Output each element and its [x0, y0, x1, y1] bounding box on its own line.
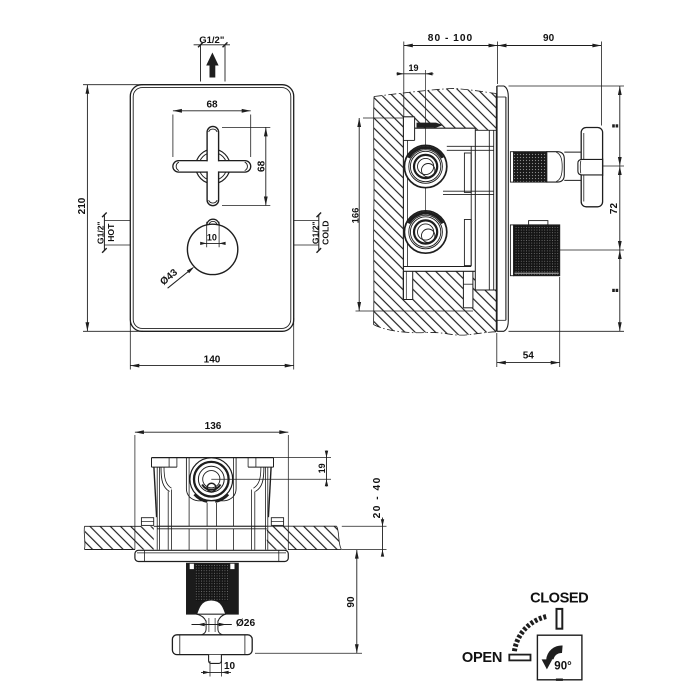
svg-text:10: 10: [224, 661, 236, 672]
svg-text:90: 90: [543, 33, 555, 44]
svg-text:Ø26: Ø26: [236, 618, 256, 629]
svg-text:136: 136: [205, 421, 222, 432]
svg-text:OPEN: OPEN: [462, 650, 502, 666]
svg-text:10: 10: [207, 233, 217, 243]
svg-text:G1/2": G1/2": [199, 35, 224, 46]
svg-text:90: 90: [346, 596, 357, 608]
svg-text:54: 54: [523, 351, 535, 362]
svg-text:19: 19: [408, 63, 418, 73]
svg-text:80 - 100: 80 - 100: [428, 33, 473, 44]
svg-text:19: 19: [317, 463, 327, 473]
svg-text:68: 68: [257, 160, 268, 172]
svg-text:166: 166: [350, 208, 361, 224]
svg-text:90°: 90°: [554, 660, 572, 672]
svg-text:68: 68: [206, 100, 218, 111]
svg-text:G1/2": G1/2": [95, 221, 105, 244]
svg-text:HOT: HOT: [106, 223, 116, 242]
svg-text:20 - 40: 20 - 40: [372, 476, 383, 518]
svg-text:210: 210: [77, 197, 88, 214]
svg-text:140: 140: [204, 354, 221, 365]
svg-text:COLD: COLD: [320, 221, 330, 245]
svg-text:G1/2": G1/2": [310, 221, 320, 244]
svg-text:CLOSED: CLOSED: [530, 590, 588, 606]
svg-text:72: 72: [609, 203, 620, 215]
